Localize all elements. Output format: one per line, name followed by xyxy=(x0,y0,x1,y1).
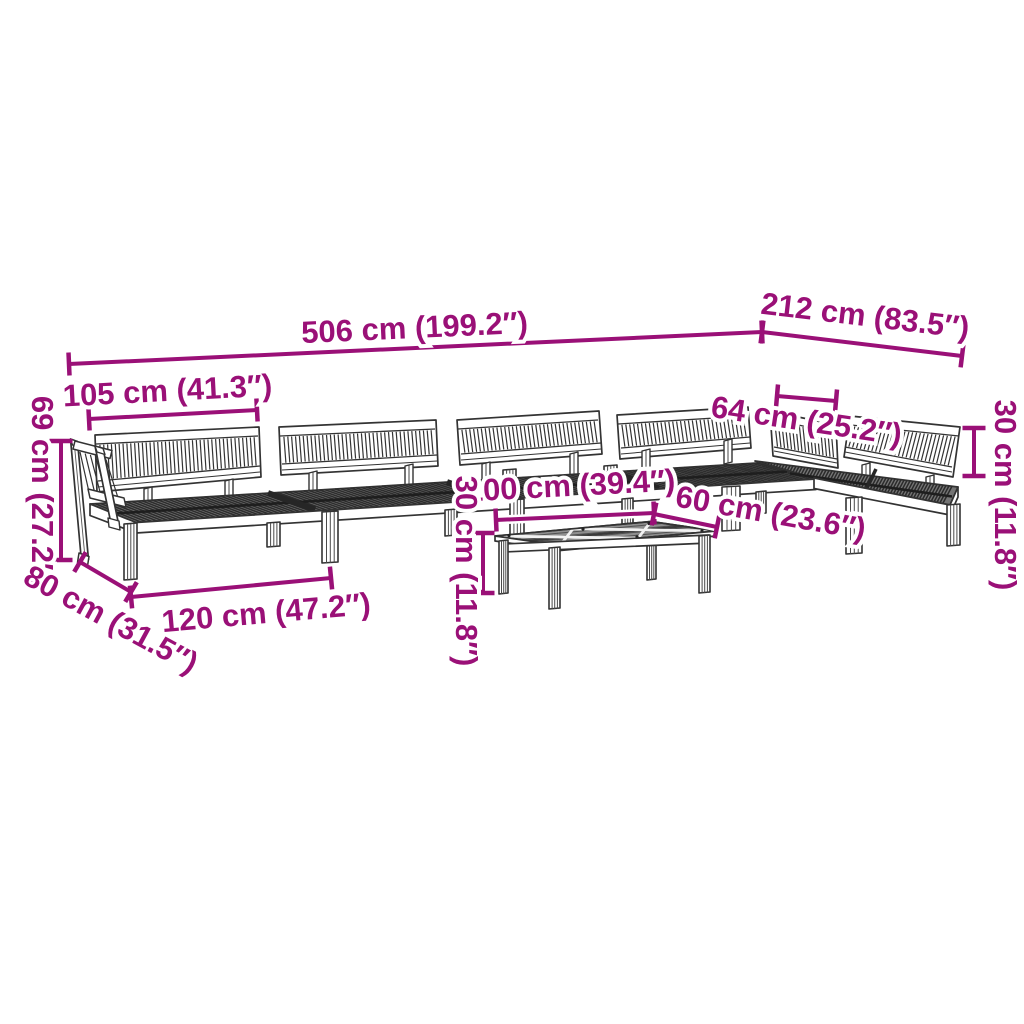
svg-text:30 cm (11.8″): 30 cm (11.8″) xyxy=(988,400,1023,591)
svg-text:69 cm (27.2″): 69 cm (27.2″) xyxy=(25,396,60,588)
svg-text:30 cm (11.8″): 30 cm (11.8″) xyxy=(449,476,484,667)
